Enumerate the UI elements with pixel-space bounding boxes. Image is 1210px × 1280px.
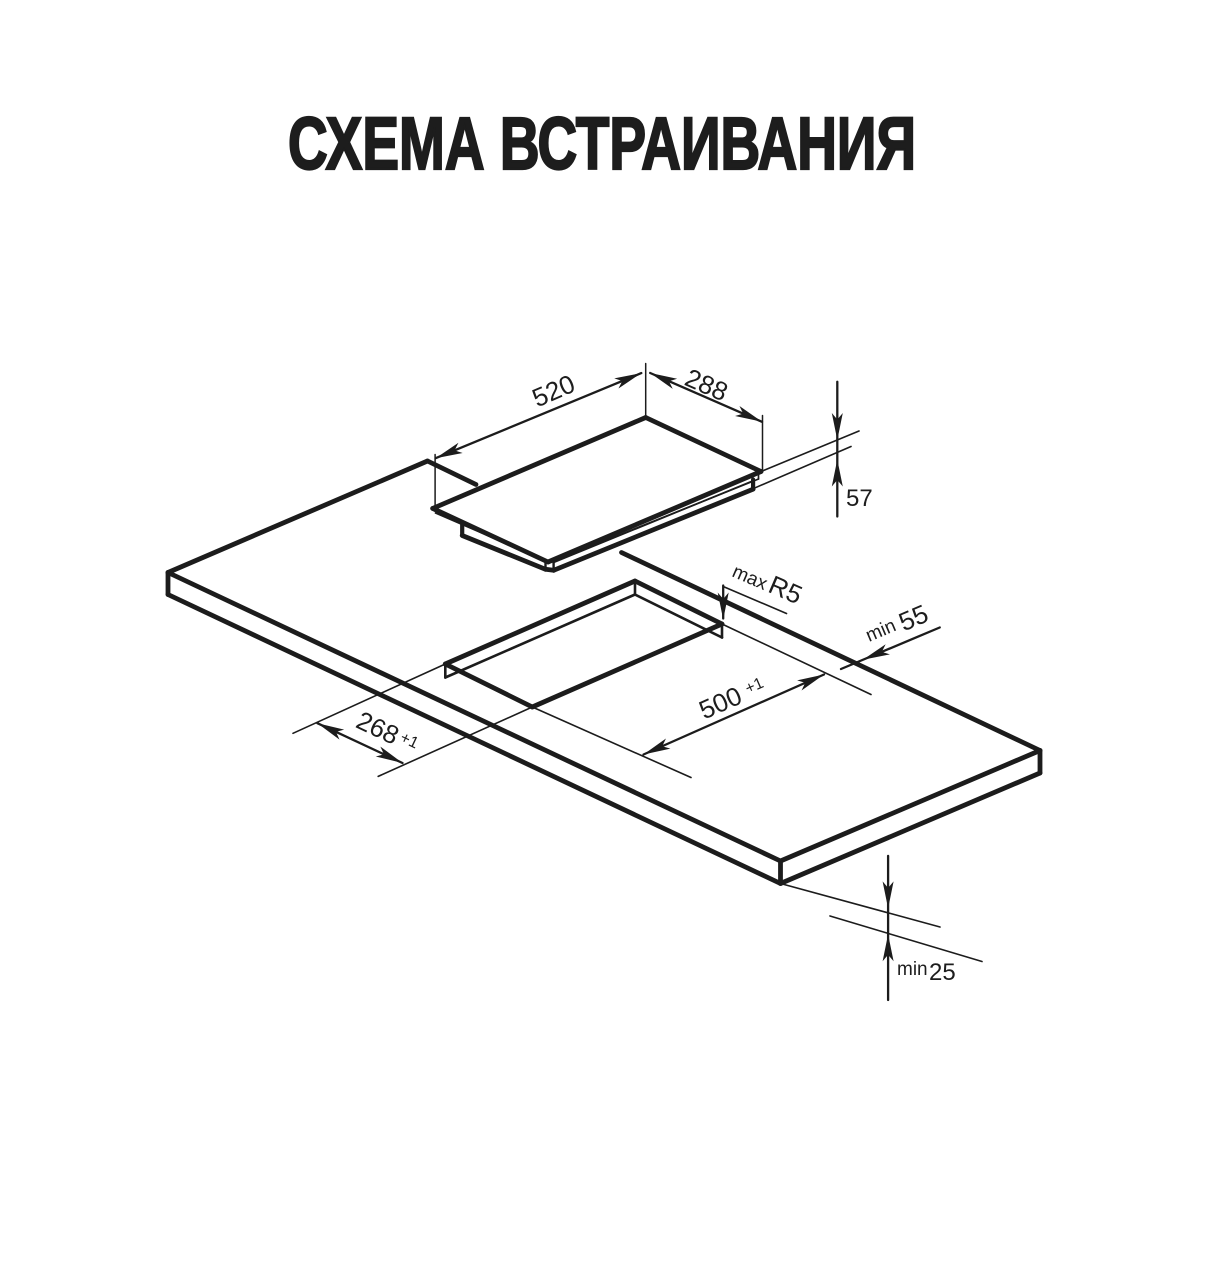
svg-text:min: min — [897, 959, 928, 980]
svg-text:25: 25 — [929, 959, 956, 986]
svg-text:СХЕМА ВСТРАИВАНИЯ: СХЕМА ВСТРАИВАНИЯ — [288, 102, 916, 185]
svg-text:57: 57 — [846, 485, 873, 512]
